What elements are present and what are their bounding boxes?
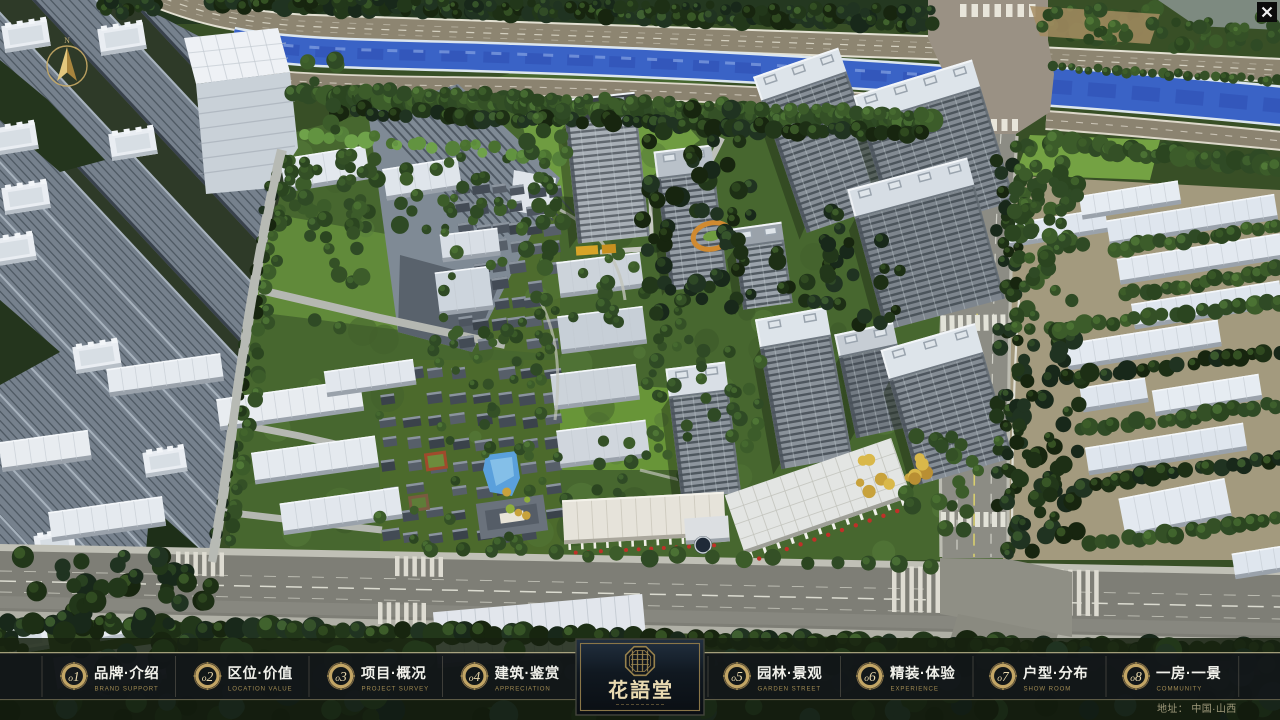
svg-text:BRAND SUPPORT: BRAND SUPPORT xyxy=(95,686,159,693)
svg-text:LOCATION VALUE: LOCATION VALUE xyxy=(228,686,293,693)
svg-text:EXPERIENCE: EXPERIENCE xyxy=(891,686,939,693)
svg-text:COMMUNITY: COMMUNITY xyxy=(1157,686,1203,693)
svg-text:花語堂: 花語堂 xyxy=(608,678,674,702)
svg-text:项目·概况: 项目·概况 xyxy=(361,664,426,682)
svg-text:园林·景观: 园林·景观 xyxy=(757,664,822,682)
svg-text:区位·价值: 区位·价值 xyxy=(228,664,293,682)
svg-text:建筑·鉴赏: 建筑·鉴赏 xyxy=(495,664,560,682)
svg-text:N: N xyxy=(64,36,70,45)
svg-text:户型·分布: 户型·分布 xyxy=(1023,664,1088,682)
svg-text:精装·体验: 精装·体验 xyxy=(890,664,955,682)
svg-text:一房·一景: 一房·一景 xyxy=(1156,664,1221,682)
svg-text:GARDEN STREET: GARDEN STREET xyxy=(758,686,822,693)
svg-text:PROJECT SURVEY: PROJECT SURVEY xyxy=(362,686,430,693)
svg-text:APPRECIATION: APPRECIATION xyxy=(495,686,551,693)
svg-text:SHOW ROOM: SHOW ROOM xyxy=(1024,686,1072,693)
svg-text:品牌·介绍: 品牌·介绍 xyxy=(94,664,159,682)
svg-text:地址： 中国·山西: 地址： 中国·山西 xyxy=(1157,702,1237,715)
